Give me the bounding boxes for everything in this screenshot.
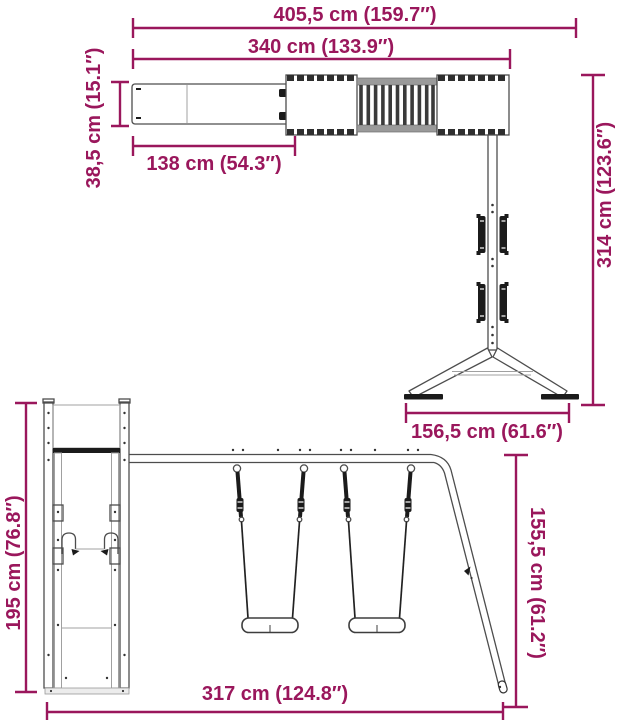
platform-left-top <box>286 75 357 135</box>
stand-foot-right <box>541 394 579 400</box>
dim-deck-length-label: 340 cm (133.9″) <box>248 36 394 58</box>
platform-right-top <box>437 75 509 135</box>
bridge-top <box>357 78 437 132</box>
tower-base-plate <box>45 688 129 694</box>
slide-top <box>132 84 290 124</box>
dim-swing-length-label: 317 cm (124.8″) <box>202 683 348 705</box>
dim-slide-length: 138 cm (54.3″) <box>133 136 295 175</box>
dim-swing-height: 155,5 cm (61.2″) <box>504 455 548 707</box>
dimension-diagram: 405,5 cm (159.7″) 340 cm (133.9″) 38,5 c… <box>0 0 618 720</box>
slide-tower <box>43 399 130 694</box>
swing-1 <box>233 465 307 633</box>
tower-post-left <box>44 402 53 688</box>
top-view: 405,5 cm (159.7″) 340 cm (133.9″) 38,5 c… <box>83 4 616 443</box>
stand-foot-left <box>404 394 443 400</box>
dim-stand-width: 156,5 cm (61.6″) <box>406 403 569 443</box>
swing-beam-top <box>477 135 509 350</box>
a-frame-stand <box>404 348 579 400</box>
tower-deck <box>53 448 120 453</box>
dim-deck-length: 340 cm (133.9″) <box>133 36 510 69</box>
dim-frame-depth: 314 cm (123.6″) <box>581 75 616 405</box>
dim-slide-width-label: 38,5 cm (15.1″) <box>83 48 105 189</box>
swing-hook-icon <box>300 465 307 472</box>
dim-total-length-label: 405,5 cm (159.7″) <box>273 4 436 26</box>
dim-tower-height: 195 cm (76.8″) <box>3 403 37 692</box>
tower-post-right <box>120 402 129 688</box>
dim-total-length: 405,5 cm (159.7″) <box>133 4 576 38</box>
swing-hook-icon <box>233 465 240 472</box>
swing-beam-front <box>129 449 508 694</box>
swing-2 <box>340 465 414 633</box>
dim-tower-height-label: 195 cm (76.8″) <box>3 495 25 630</box>
dim-slide-width: 38,5 cm (15.1″) <box>83 48 129 189</box>
swing-hook-icon <box>340 465 347 472</box>
dim-swing-height-label: 155,5 cm (61.2″) <box>526 507 548 659</box>
dim-slide-length-label: 138 cm (54.3″) <box>146 153 281 175</box>
front-view: 195 cm (76.8″) <box>3 399 548 720</box>
dim-stand-width-label: 156,5 cm (61.6″) <box>411 421 563 443</box>
dim-frame-depth-label: 314 cm (123.6″) <box>594 122 616 268</box>
swing-hook-icon <box>407 465 414 472</box>
